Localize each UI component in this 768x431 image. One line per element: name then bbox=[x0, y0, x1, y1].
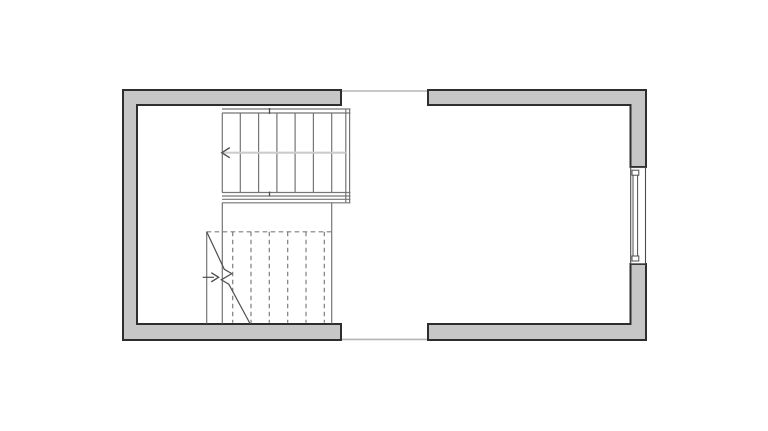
window-glazing-cap bbox=[632, 170, 639, 175]
floor-plan-drawing bbox=[0, 0, 768, 431]
floor-plan-page bbox=[0, 0, 768, 431]
window-glazing-cap bbox=[632, 256, 639, 261]
drawing-background bbox=[0, 0, 768, 431]
window-glazing bbox=[633, 172, 638, 261]
